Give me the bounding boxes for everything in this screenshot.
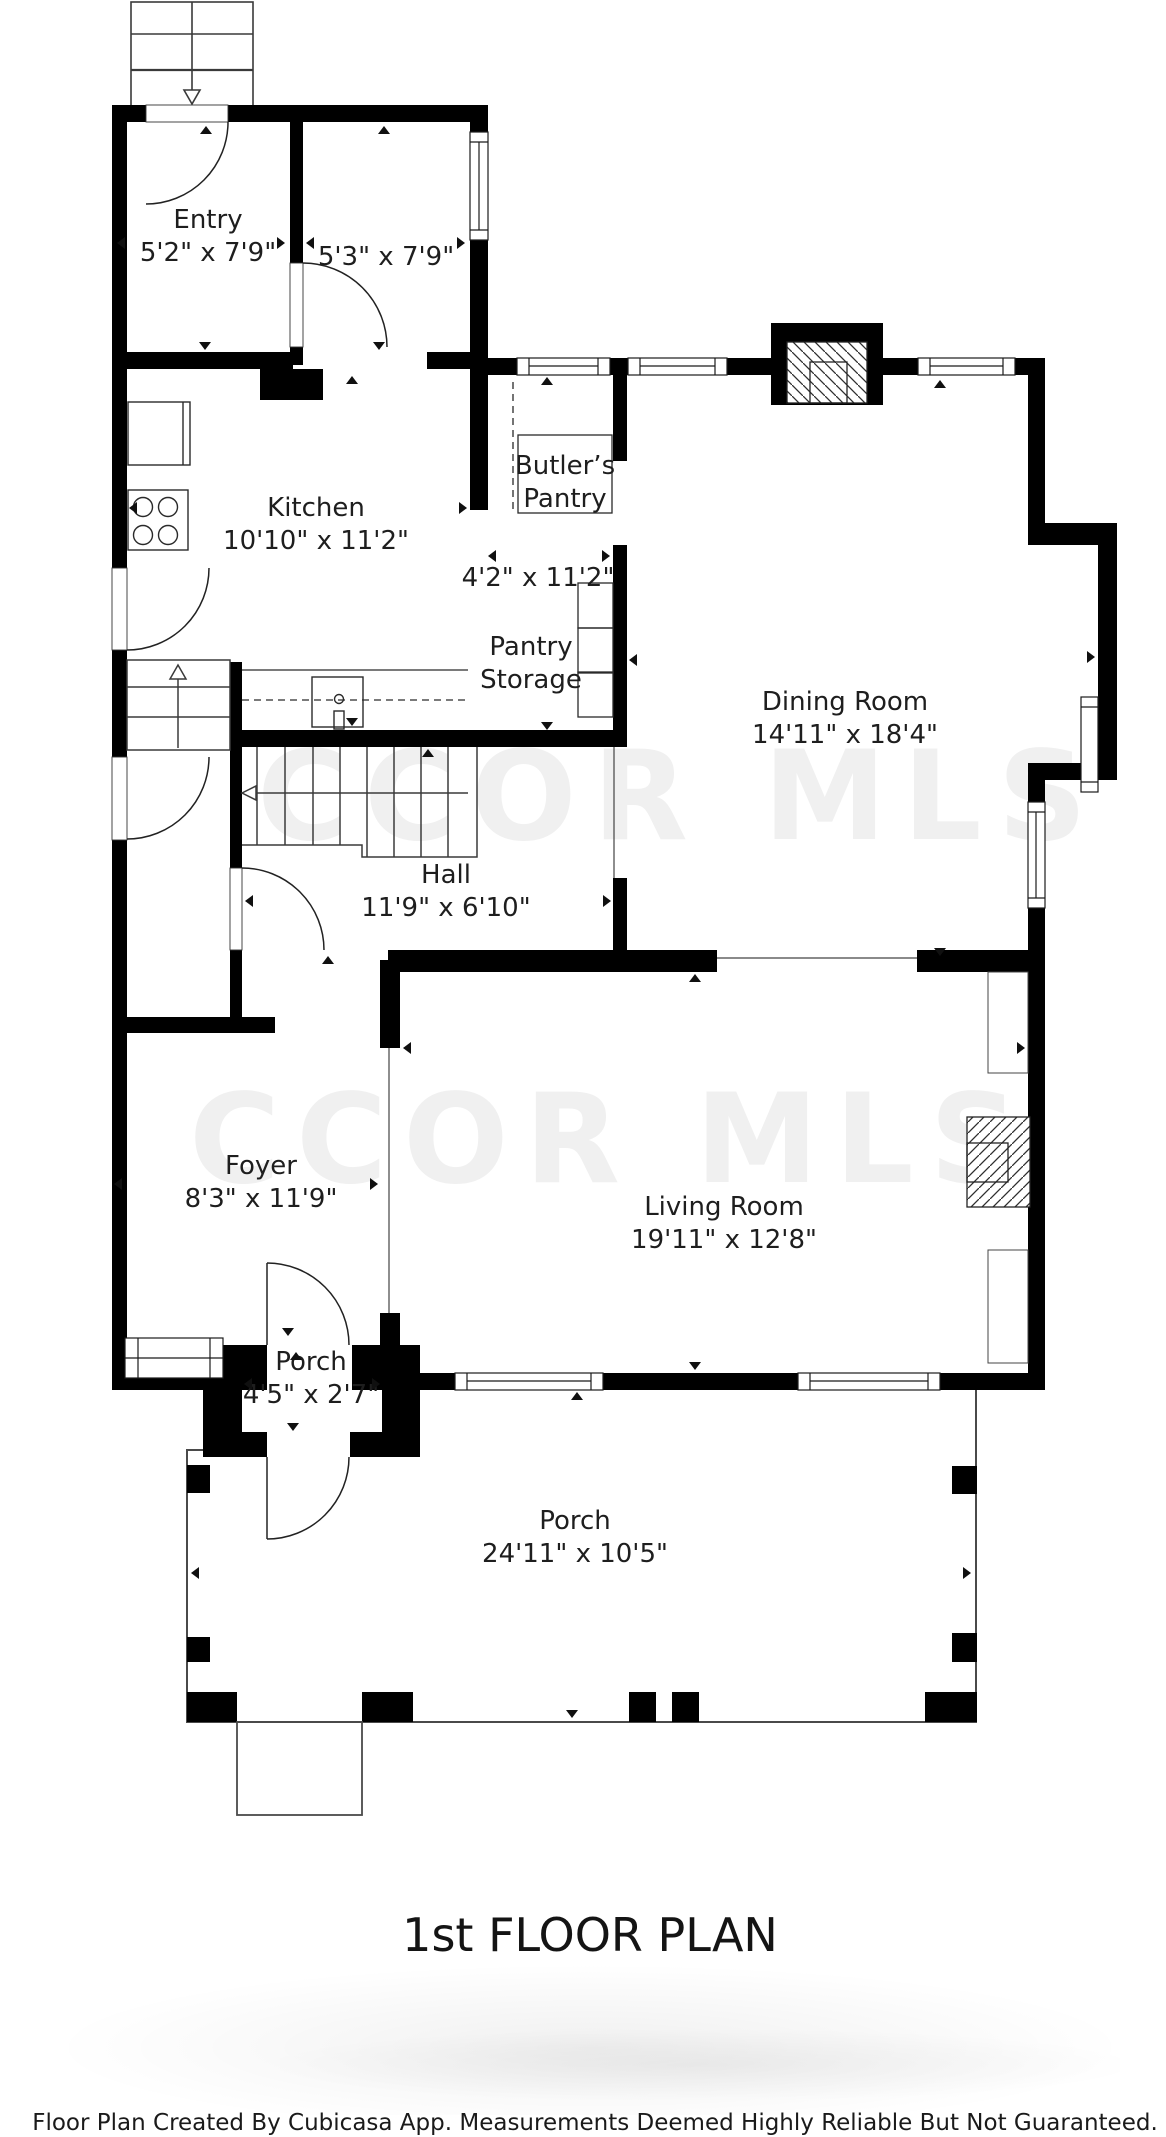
dimension-arrow-down-icon xyxy=(346,718,358,726)
room-label-kitchen: Kitchen10'10" x 11'2" xyxy=(223,492,409,558)
room-label-porch_large: Porch24'11" x 10'5" xyxy=(482,1505,668,1571)
dimension-arrow-up-icon xyxy=(422,749,434,757)
dimension-arrow-down-icon xyxy=(689,1362,701,1370)
dimension-arrow-down-icon xyxy=(282,1328,294,1336)
room-name: Hall xyxy=(361,859,530,892)
dimension-arrow-up-icon xyxy=(541,377,553,385)
dimension-arrow-down-icon xyxy=(199,342,211,350)
dimension-arrow-right-icon xyxy=(457,237,465,249)
room-dimensions: 24'11" x 10'5" xyxy=(482,1538,668,1571)
room-label-foyer: Foyer8'3" x 11'9" xyxy=(185,1150,338,1216)
room-labels-layer: Entry5'2" x 7'9"5'3" x 7'9"Kitchen10'10"… xyxy=(0,0,1166,2137)
room-label-butlers_pantry: Butler’s Pantry xyxy=(515,450,615,516)
room-label-pantry_storage: Pantry Storage xyxy=(480,631,582,697)
room-dimensions: 4'5" x 2'7" xyxy=(243,1379,379,1412)
room-name: Porch xyxy=(482,1505,668,1538)
dimension-arrow-right-icon xyxy=(459,502,467,514)
disclaimer-text: Floor Plan Created By Cubicasa App. Meas… xyxy=(32,2110,1158,2136)
dimension-arrow-left-icon xyxy=(245,895,253,907)
dimension-arrow-right-icon xyxy=(603,895,611,907)
room-name: Entry xyxy=(140,204,276,237)
dimension-arrow-down-icon xyxy=(373,342,385,350)
dimension-arrow-down-icon xyxy=(287,1423,299,1431)
dimension-arrow-right-icon xyxy=(1017,1042,1025,1054)
plan-title: 1st FLOOR PLAN xyxy=(402,1908,778,1962)
room-dimensions: 10'10" x 11'2" xyxy=(223,525,409,558)
dimension-arrow-left-icon xyxy=(191,1567,199,1579)
floor-plan-page: CCOR MLS CCOR MLS xyxy=(0,0,1166,2137)
dimension-arrow-left-icon xyxy=(117,237,125,249)
dimension-arrow-down-icon xyxy=(541,722,553,730)
room-dimensions: 4'2" x 11'2" xyxy=(462,562,615,595)
dimension-arrow-left-icon xyxy=(244,1378,252,1390)
room-dimensions: 11'9" x 6'10" xyxy=(361,892,530,925)
room-name: Butler’s Pantry xyxy=(515,450,615,516)
dimension-arrow-right-icon xyxy=(277,237,285,249)
dimension-arrow-right-icon xyxy=(602,550,610,562)
dimension-arrow-right-icon xyxy=(963,1567,971,1579)
dimension-arrow-left-icon xyxy=(629,654,637,666)
dimension-arrow-up-icon xyxy=(934,380,946,388)
room-label-living_room: Living Room19'11" x 12'8" xyxy=(631,1191,817,1257)
dimension-arrow-left-icon xyxy=(129,502,137,514)
dimension-arrow-right-icon xyxy=(370,1178,378,1190)
room-label-mudroom: 5'3" x 7'9" xyxy=(318,241,454,274)
dimension-arrow-up-icon xyxy=(322,956,334,964)
room-dimensions: 5'3" x 7'9" xyxy=(318,241,454,274)
room-label-dining_room: Dining Room14'11" x 18'4" xyxy=(752,686,938,752)
room-dimensions: 14'11" x 18'4" xyxy=(752,719,938,752)
dimension-arrow-right-icon xyxy=(1087,651,1095,663)
room-dimensions: 8'3" x 11'9" xyxy=(185,1183,338,1216)
room-name: Dining Room xyxy=(752,686,938,719)
dimension-arrow-down-icon xyxy=(934,948,946,956)
dimension-arrow-up-icon xyxy=(290,1352,302,1360)
room-label-entry: Entry5'2" x 7'9" xyxy=(140,204,276,270)
dimension-arrow-left-icon xyxy=(403,1042,411,1054)
room-dimensions: 5'2" x 7'9" xyxy=(140,237,276,270)
dimension-arrow-down-icon xyxy=(566,1710,578,1718)
room-name: Porch xyxy=(243,1346,379,1379)
room-name: Living Room xyxy=(631,1191,817,1224)
room-label-pantry_corridor: 4'2" x 11'2" xyxy=(462,562,615,595)
dimension-arrow-up-icon xyxy=(378,126,390,134)
room-name: Pantry Storage xyxy=(480,631,582,697)
dimension-arrow-right-icon xyxy=(372,1378,380,1390)
room-label-hall: Hall11'9" x 6'10" xyxy=(361,859,530,925)
dimension-arrow-up-icon xyxy=(571,1392,583,1400)
dimension-arrow-left-icon xyxy=(306,237,314,249)
room-name: Kitchen xyxy=(223,492,409,525)
dimension-arrow-up-icon xyxy=(200,126,212,134)
dimension-arrow-up-icon xyxy=(346,376,358,384)
room-name: Foyer xyxy=(185,1150,338,1183)
dimension-arrow-up-icon xyxy=(689,974,701,982)
dimension-arrow-left-icon xyxy=(114,1178,122,1190)
room-label-porch_small: Porch4'5" x 2'7" xyxy=(243,1346,379,1412)
room-dimensions: 19'11" x 12'8" xyxy=(631,1224,817,1257)
dimension-arrow-left-icon xyxy=(488,550,496,562)
